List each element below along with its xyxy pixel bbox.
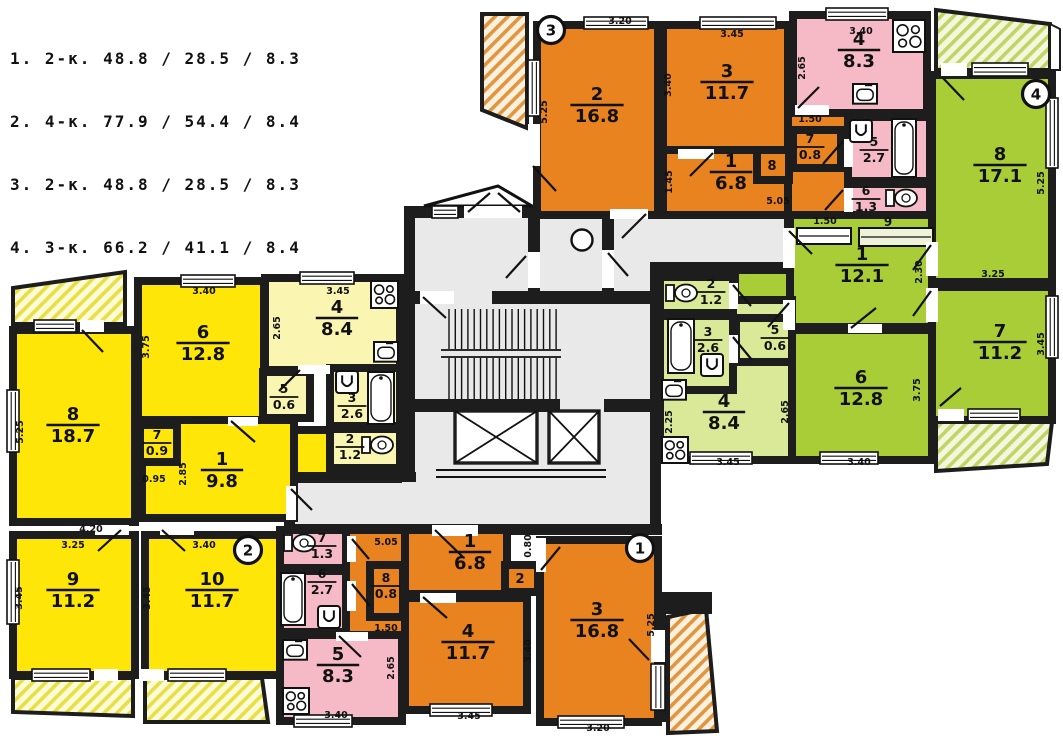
room-number: 8 <box>767 159 776 174</box>
dimension-label: 0.80 <box>523 534 534 558</box>
apartment-badge-number: 1 <box>635 540 645 558</box>
room-number: 6 <box>862 183 871 198</box>
door-opening <box>844 139 853 167</box>
door-opening <box>528 252 540 288</box>
room-area: 8.3 <box>843 51 875 72</box>
toilet-icon <box>895 190 917 207</box>
toilet-icon <box>675 285 697 302</box>
washbasin-icon <box>318 606 340 628</box>
room-number: 9 <box>67 569 80 590</box>
dimension-label: 3.45 <box>142 586 153 609</box>
stove-icon <box>893 20 925 52</box>
room-number: 5 <box>280 381 289 396</box>
wall <box>662 592 712 614</box>
room-number: 5 <box>771 322 780 337</box>
room-number: 4 <box>462 621 475 642</box>
door-opening <box>941 63 967 76</box>
window <box>300 272 354 284</box>
room-number: 8 <box>382 570 391 585</box>
door-opening <box>926 288 938 322</box>
dimension-label: 3.75 <box>141 335 152 358</box>
legend-line-1: 1. 2-к. 48.8 / 28.5 / 8.3 <box>10 48 301 69</box>
dimension-label: 3.20 <box>586 723 610 734</box>
room-number: 5 <box>870 134 879 149</box>
washbasin-icon <box>701 354 723 376</box>
dimension-label: 5.05 <box>374 537 397 548</box>
room-number: 8 <box>994 144 1007 165</box>
window <box>168 669 226 681</box>
dimension-label: 2.65 <box>780 400 791 423</box>
room-area: 8.4 <box>708 413 740 434</box>
dimension-label: 3.40 <box>324 710 348 721</box>
door-opening <box>140 669 164 681</box>
room-number: 5 <box>332 644 345 665</box>
dimension-label: 3.45 <box>326 286 349 297</box>
room-area: 1.3 <box>855 199 877 214</box>
dimension-label: 3.40 <box>663 73 674 97</box>
dimension-label: 3.45 <box>14 586 25 609</box>
room-area: 11.7 <box>446 643 490 664</box>
room-area: 2.6 <box>341 406 363 421</box>
room-number: 2 <box>591 84 604 105</box>
room-number: 7 <box>994 321 1007 342</box>
dimension-label: 1.50 <box>813 216 837 227</box>
dimension-label: 3.40 <box>523 639 534 663</box>
room-area: 12.8 <box>181 344 225 365</box>
dimension-label: 3.25 <box>981 269 1004 280</box>
window <box>432 206 458 218</box>
door-opening <box>528 124 540 166</box>
dimension-label: 5.05 <box>766 196 789 207</box>
room-number: 1 <box>216 449 229 470</box>
window <box>826 8 888 20</box>
door-opening <box>602 250 614 288</box>
room-area: 2.7 <box>311 582 333 597</box>
room-area: 11.2 <box>51 591 95 612</box>
room-area: 2.7 <box>863 150 885 165</box>
toilet-icon <box>284 535 292 551</box>
dimension-label: 0.95 <box>142 474 165 485</box>
dimension-label: 3.45 <box>720 29 743 40</box>
room-area: 0.9 <box>146 443 168 458</box>
room-area: 1.2 <box>339 447 361 462</box>
room-number: 7 <box>318 530 327 545</box>
room-number: 8 <box>67 404 80 425</box>
toilet-icon <box>362 437 370 453</box>
dimension-label: 5.25 <box>539 100 550 123</box>
room-number: 6 <box>318 566 327 581</box>
room-area: 2.6 <box>697 340 719 355</box>
dimension-label: 3.75 <box>912 378 923 401</box>
window <box>968 409 1020 421</box>
door-opening <box>298 365 330 374</box>
stove-icon <box>662 437 688 463</box>
room-number: 4 <box>718 391 731 412</box>
room-number: 2 <box>515 572 524 587</box>
stove-icon <box>371 281 398 308</box>
apartment-badge-number: 3 <box>546 22 556 40</box>
dimension-label: 1.50 <box>374 623 398 634</box>
room-number: 9 <box>884 215 892 229</box>
room-number: 2 <box>346 431 355 446</box>
room-area: 11.7 <box>705 83 749 104</box>
dimension-label: 3.45 <box>457 711 480 722</box>
room-area: 8.4 <box>321 319 353 340</box>
room-area: 0.6 <box>764 338 786 353</box>
room-number: 1 <box>464 531 477 552</box>
dimension-label: 3.45 <box>716 457 739 468</box>
apartment-badge-number: 2 <box>243 542 253 560</box>
dimension-label: 3.45 <box>1036 332 1047 355</box>
room-area: 0.8 <box>799 147 821 162</box>
dimension-label: 1.50 <box>798 114 822 125</box>
bathtub-icon <box>679 323 683 327</box>
room-area: 17.1 <box>978 166 1022 187</box>
dimension-label: 2.65 <box>272 316 283 339</box>
door-opening <box>926 242 938 276</box>
room-number: 3 <box>348 390 357 405</box>
garbage-chute-icon <box>572 230 593 251</box>
balcony-bottom-right-green <box>936 422 1052 471</box>
room-number: 2 <box>707 276 716 291</box>
bathtub-icon <box>379 376 383 380</box>
toilet-icon <box>886 190 894 206</box>
room-area: 11.7 <box>190 591 234 612</box>
legend-line-2: 2. 4-к. 77.9 / 54.4 / 8.4 <box>10 111 301 132</box>
window <box>972 63 1028 76</box>
dimension-label: 2.65 <box>386 656 397 679</box>
door-opening <box>938 409 964 421</box>
balcony-top-orange <box>482 14 527 128</box>
room-number: 3 <box>721 61 734 82</box>
room-area: 6.8 <box>454 553 486 574</box>
room-area: 6.8 <box>715 173 747 194</box>
dimension-label: 3.20 <box>608 16 632 27</box>
window <box>32 669 90 681</box>
room-number: 4 <box>331 297 344 318</box>
dimension-label: 5.25 <box>1036 171 1047 194</box>
dimension-label: 2.25 <box>664 410 675 433</box>
window <box>700 17 776 29</box>
floor-plan-page: 1. 2-к. 48.8 / 28.5 / 8.3 2. 4-к. 77.9 /… <box>0 0 1063 743</box>
room-number: 6 <box>855 367 868 388</box>
dimension-label: 2.30 <box>914 260 925 284</box>
window <box>1046 296 1058 358</box>
toilet-icon <box>371 437 393 454</box>
dimension-label: 3.40 <box>192 540 216 551</box>
room-area: 12.1 <box>840 266 884 287</box>
window <box>651 664 665 710</box>
window <box>34 320 76 332</box>
bathtub-icon <box>291 577 295 581</box>
legend: 1. 2-к. 48.8 / 28.5 / 8.3 2. 4-к. 77.9 /… <box>10 6 301 300</box>
stove-icon <box>283 688 309 714</box>
room-area: 0.6 <box>273 397 295 412</box>
room-area: 0.8 <box>375 586 397 601</box>
balcony-bottom-yellow-2 <box>145 678 268 722</box>
room-number: 7 <box>153 427 162 442</box>
dimension-label: 3.40 <box>847 457 871 468</box>
room-area: 8.3 <box>322 666 354 687</box>
room-area: 16.8 <box>575 621 619 642</box>
corridor-bottom <box>295 482 660 524</box>
balcony-bottom-yellow-1 <box>13 678 133 716</box>
apartment-badge-number: 4 <box>1031 86 1041 104</box>
dimension-label: 5.25 <box>646 613 657 636</box>
room-area: 11.2 <box>978 343 1022 364</box>
room-area: 1.3 <box>311 546 333 561</box>
wall-opening <box>402 482 418 524</box>
room-number: 10 <box>199 569 224 590</box>
room-area: 1.2 <box>700 292 722 307</box>
door-opening <box>844 188 853 212</box>
dimension-label: 2.85 <box>178 462 189 485</box>
room-area: 12.8 <box>839 389 883 410</box>
room-number: 3 <box>704 324 713 339</box>
room-area: 16.8 <box>575 106 619 127</box>
dimension-label: 3.40 <box>849 26 873 37</box>
room-area: 18.7 <box>51 426 95 447</box>
legend-line-3: 3. 2-к. 48.8 / 28.5 / 8.3 <box>10 174 301 195</box>
room-number: 1 <box>725 151 738 172</box>
balcony-rail <box>1050 24 1060 70</box>
dimension-label: 4.20 <box>79 524 103 535</box>
bathtub-icon <box>902 123 906 127</box>
room-area: 9.8 <box>206 471 238 492</box>
balcony-bottom-orange <box>668 609 717 733</box>
room-number: 1 <box>856 244 869 265</box>
room-number: 3 <box>591 599 604 620</box>
dimension-label: 1.45 <box>664 170 675 193</box>
room-number: 7 <box>806 131 815 146</box>
dimension-label: 2.65 <box>797 56 808 79</box>
door-opening <box>94 669 118 681</box>
toilet-icon <box>666 285 674 301</box>
wall-opening <box>448 291 492 304</box>
window <box>1046 98 1058 168</box>
dimension-label: 3.25 <box>61 540 84 551</box>
door-opening <box>347 581 356 611</box>
room-number: 6 <box>197 322 210 343</box>
dimension-label: 5.25 <box>15 420 26 443</box>
legend-line-4: 4. 3-к. 66.2 / 41.1 / 8.4 <box>10 237 301 258</box>
